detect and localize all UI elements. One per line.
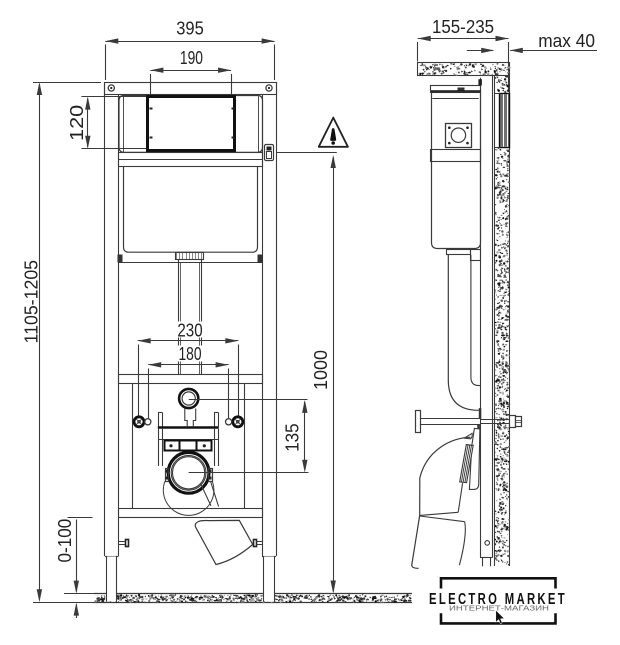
svg-text:155-235: 155-235 — [432, 16, 494, 37]
svg-text:230: 230 — [177, 320, 202, 341]
svg-text:0-100: 0-100 — [54, 519, 75, 563]
svg-text:ИНТЕРНЕТ-МАГАЗИН: ИНТЕРНЕТ-МАГАЗИН — [449, 606, 549, 613]
svg-text:1000: 1000 — [310, 350, 331, 390]
svg-text:190: 190 — [180, 47, 203, 68]
svg-text:135: 135 — [281, 423, 302, 451]
svg-text:max 40: max 40 — [538, 30, 595, 51]
svg-text:180: 180 — [179, 343, 202, 364]
svg-text:395: 395 — [176, 17, 204, 38]
svg-text:120: 120 — [66, 105, 87, 141]
svg-text:1105-1205: 1105-1205 — [20, 260, 41, 344]
